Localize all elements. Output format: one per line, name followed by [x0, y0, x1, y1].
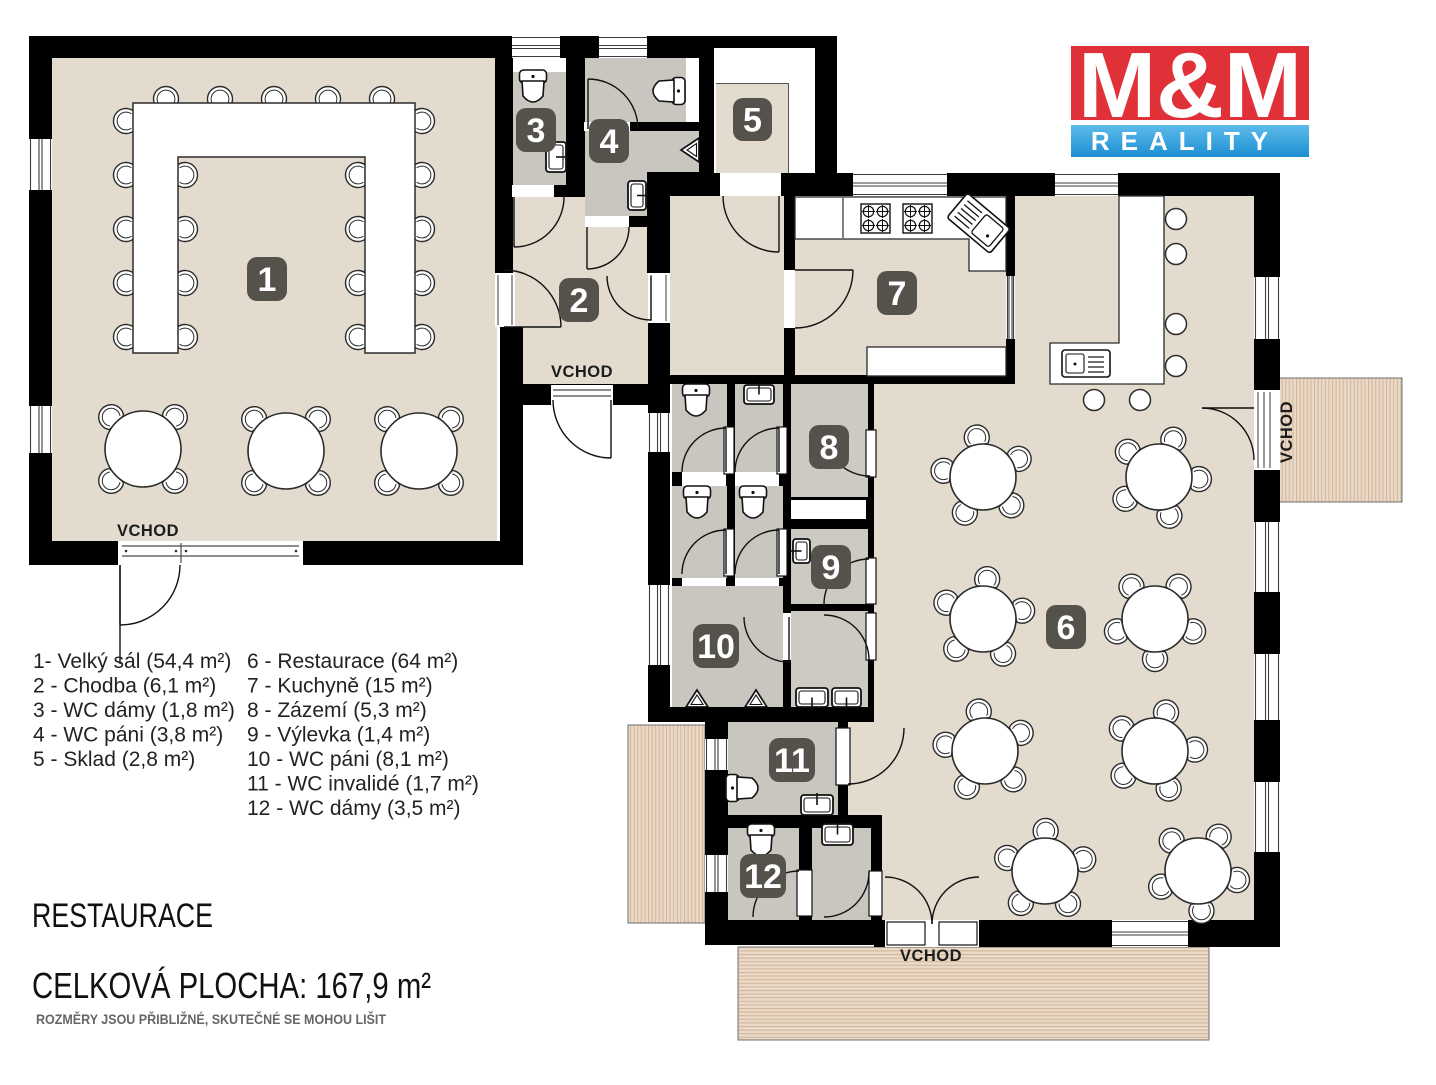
- svg-text:9 - Výlevka (1,4 m²): 9 - Výlevka (1,4 m²): [247, 724, 430, 747]
- svg-text:6: 6: [1057, 609, 1076, 647]
- svg-text:12 - WC dámy (3,5 m²): 12 - WC dámy (3,5 m²): [247, 797, 461, 820]
- svg-text:ROZMĚRY JSOU PŘIBLIŽNÉ, SKUTEČ: ROZMĚRY JSOU PŘIBLIŽNÉ, SKUTEČNÉ SE MOHO…: [36, 1010, 386, 1027]
- svg-text:11: 11: [774, 742, 810, 780]
- svg-text:3 - WC dámy (1,8 m²): 3 - WC dámy (1,8 m²): [33, 699, 235, 722]
- svg-text:RESTAURACE: RESTAURACE: [32, 897, 213, 935]
- svg-text:CELKOVÁ PLOCHA: 167,9 m²: CELKOVÁ PLOCHA: 167,9 m²: [32, 965, 431, 1006]
- svg-text:7: 7: [888, 275, 907, 313]
- svg-text:9: 9: [822, 549, 841, 587]
- svg-text:4 - WC páni (3,8 m²): 4 - WC páni (3,8 m²): [33, 724, 223, 747]
- svg-text:12: 12: [744, 858, 782, 896]
- svg-text:1- Velký sál (54,4 m²): 1- Velký sál (54,4 m²): [33, 650, 231, 673]
- svg-text:7 - Kuchyně (15 m²): 7 - Kuchyně (15 m²): [247, 675, 433, 698]
- svg-text:11 - WC invalidé (1,7 m²): 11 - WC invalidé (1,7 m²): [247, 773, 479, 796]
- svg-text:5: 5: [743, 102, 762, 140]
- svg-text:10 - WC páni (8,1 m²): 10 - WC páni (8,1 m²): [247, 748, 449, 771]
- svg-text:3: 3: [527, 112, 546, 150]
- svg-text:2 - Chodba (6,1 m²): 2 - Chodba (6,1 m²): [33, 675, 216, 698]
- svg-text:M&M: M&M: [1078, 33, 1302, 137]
- svg-text:1: 1: [258, 261, 277, 299]
- svg-text:10: 10: [697, 628, 735, 666]
- svg-text:VCHOD: VCHOD: [117, 522, 179, 540]
- svg-text:6 - Restaurace (64 m²): 6 - Restaurace (64 m²): [247, 650, 458, 673]
- svg-text:4: 4: [600, 123, 619, 161]
- svg-text:VCHOD: VCHOD: [1278, 401, 1296, 463]
- svg-text:8 - Zázemí (5,3 m²): 8 - Zázemí (5,3 m²): [247, 699, 427, 722]
- svg-text:2: 2: [570, 282, 589, 320]
- svg-text:REALITY: REALITY: [1091, 126, 1279, 156]
- svg-text:VCHOD: VCHOD: [900, 947, 962, 965]
- svg-text:VCHOD: VCHOD: [551, 363, 613, 381]
- svg-text:8: 8: [820, 429, 839, 467]
- svg-text:5 - Sklad (2,8 m²): 5 - Sklad (2,8 m²): [33, 748, 195, 771]
